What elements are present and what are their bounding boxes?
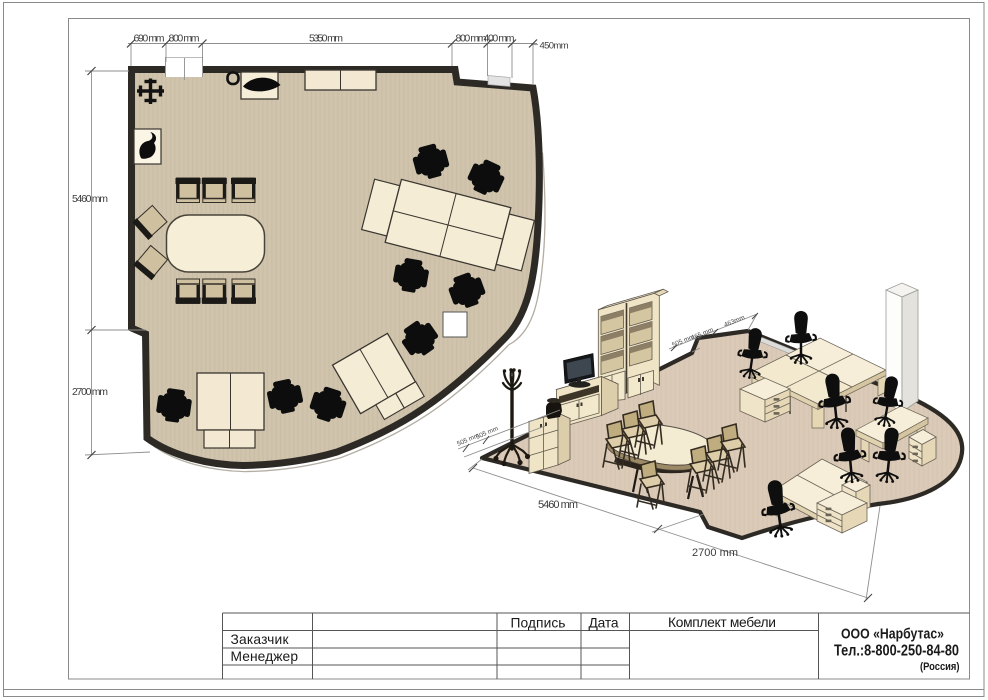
svg-text:Дата: Дата	[589, 616, 619, 631]
svg-text:(Россия): (Россия)	[920, 661, 960, 673]
svg-text:690 mm: 690 mm	[134, 33, 165, 45]
svg-text:Менеджер: Менеджер	[231, 649, 299, 664]
svg-text:400 mm: 400 mm	[484, 33, 515, 45]
svg-text:5350 mm: 5350 mm	[309, 33, 343, 45]
svg-text:Тел.:8-800-250-84-80: Тел.:8-800-250-84-80	[834, 643, 959, 660]
svg-text:450mm: 450mm	[540, 40, 569, 51]
svg-text:Подпись: Подпись	[511, 616, 566, 631]
svg-text:2700 mm: 2700 mm	[692, 547, 738, 559]
svg-text:5460 mm: 5460 mm	[538, 499, 578, 511]
svg-text:800 mm: 800 mm	[169, 33, 200, 45]
svg-text:Комплект мебели: Комплект мебели	[668, 615, 776, 630]
svg-text:5460 mm: 5460 mm	[72, 193, 108, 205]
svg-text:ООО «Нарбутас»: ООО «Нарбутас»	[841, 626, 944, 643]
svg-text:800 mm: 800 mm	[456, 33, 487, 45]
svg-text:Заказчик: Заказчик	[231, 632, 290, 647]
svg-text:2700 mm: 2700 mm	[72, 386, 108, 398]
